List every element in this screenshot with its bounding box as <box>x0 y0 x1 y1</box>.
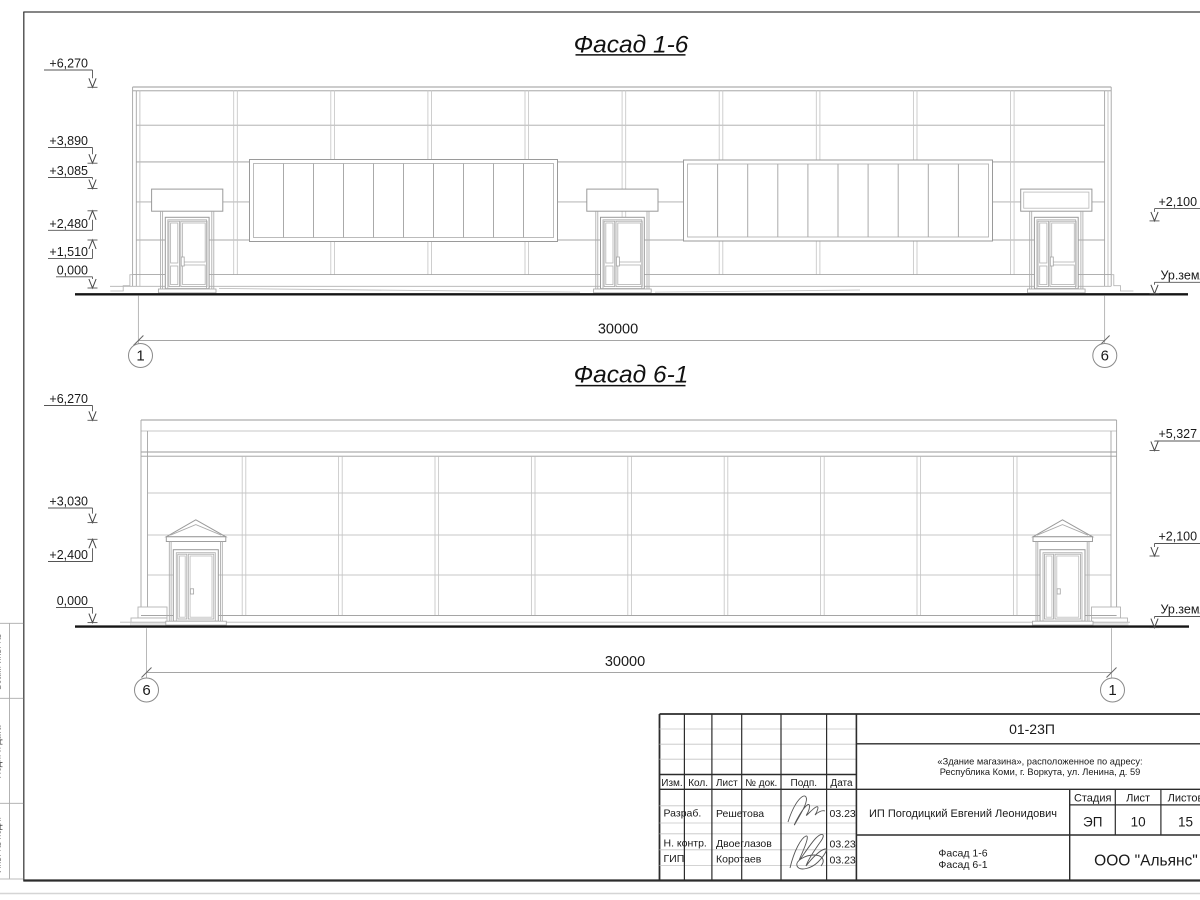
svg-text:Лист: Лист <box>716 778 738 789</box>
svg-text:+1,510: +1,510 <box>49 245 88 259</box>
svg-text:30000: 30000 <box>605 654 645 670</box>
svg-text:ЭП: ЭП <box>1083 815 1102 830</box>
svg-text:0,000: 0,000 <box>57 594 88 608</box>
svg-text:Н. контр.: Н. контр. <box>664 838 707 850</box>
svg-text:Листов: Листов <box>1168 793 1200 805</box>
svg-text:Подп.: Подп. <box>791 778 818 789</box>
svg-text:1: 1 <box>1108 682 1116 699</box>
svg-text:+2,100: +2,100 <box>1159 195 1198 209</box>
svg-text:Решетова: Решетова <box>716 808 764 820</box>
svg-text:Ур.земли: Ур.земли <box>1161 603 1200 617</box>
svg-text:Фасад 6-1: Фасад 6-1 <box>938 859 987 871</box>
svg-text:Ур.земли: Ур.земли <box>1161 269 1200 283</box>
svg-text:0,000: 0,000 <box>57 263 88 277</box>
svg-text:«Здание магазина», расположенн: «Здание магазина», расположенное по адре… <box>937 756 1142 766</box>
svg-text:+6,270: +6,270 <box>49 57 88 71</box>
svg-text:+3,030: +3,030 <box>49 495 88 509</box>
svg-text:6: 6 <box>142 682 150 699</box>
svg-text:Инв. № подл.: Инв. № подл. <box>0 817 3 873</box>
svg-text:ИП Погодицкий Евгений Леонидов: ИП Погодицкий Евгений Леонидович <box>869 808 1057 820</box>
svg-text:Изм.: Изм. <box>661 778 682 789</box>
svg-text:Подп. и дата: Подп. и дата <box>0 725 3 778</box>
svg-text:+2,480: +2,480 <box>49 217 88 231</box>
svg-text:+6,270: +6,270 <box>49 392 88 406</box>
svg-text:Лист: Лист <box>1126 793 1150 805</box>
svg-text:Республика Коми, г. Воркута, у: Республика Коми, г. Воркута, ул. Ленина,… <box>940 767 1141 777</box>
svg-text:ГИП: ГИП <box>664 853 685 865</box>
svg-text:01-23П: 01-23П <box>1009 721 1055 737</box>
svg-text:10: 10 <box>1131 815 1146 830</box>
svg-text:15: 15 <box>1178 815 1193 830</box>
svg-text:+3,085: +3,085 <box>49 164 88 178</box>
svg-text:+3,890: +3,890 <box>49 134 88 148</box>
svg-text:ООО "Альянс": ООО "Альянс" <box>1094 853 1198 870</box>
svg-text:03.23: 03.23 <box>830 855 856 867</box>
svg-text:30000: 30000 <box>598 322 638 338</box>
svg-text:1: 1 <box>136 348 144 365</box>
svg-text:Разраб.: Разраб. <box>664 808 702 820</box>
svg-text:№ док.: № док. <box>745 778 777 789</box>
svg-text:Коротаев: Коротаев <box>716 853 762 865</box>
svg-text:6: 6 <box>1101 348 1109 365</box>
svg-text:Дата: Дата <box>830 778 853 789</box>
svg-text:Взам. инв. №: Взам. инв. № <box>0 634 3 690</box>
svg-text:Кол.: Кол. <box>688 778 708 789</box>
svg-text:+2,100: +2,100 <box>1159 530 1198 544</box>
svg-text:Двоеглазов: Двоеглазов <box>716 838 772 850</box>
svg-text:+5,327: +5,327 <box>1159 427 1198 441</box>
svg-text:+2,400: +2,400 <box>49 548 88 562</box>
svg-text:03.23: 03.23 <box>830 808 856 820</box>
svg-text:Фасад 1-6: Фасад 1-6 <box>938 847 987 859</box>
svg-text:03.23: 03.23 <box>830 839 856 851</box>
svg-text:Фасад 6-1: Фасад 6-1 <box>574 362 689 389</box>
svg-text:Стадия: Стадия <box>1074 793 1112 805</box>
